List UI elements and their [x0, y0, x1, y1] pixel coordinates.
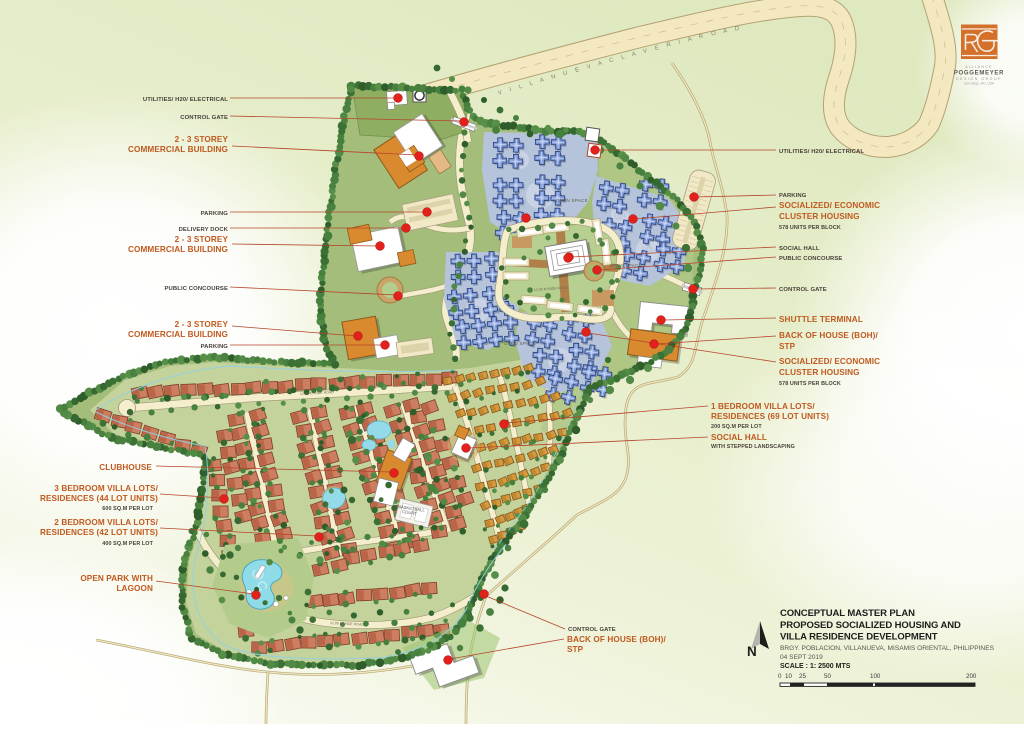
svg-text:SCALE : 1: 2500 MTS: SCALE : 1: 2500 MTS	[780, 663, 851, 670]
svg-text:DESIGN GROUP: DESIGN GROUP	[956, 77, 1002, 81]
svg-text:200: 200	[966, 673, 977, 680]
svg-text:50: 50	[824, 673, 831, 680]
svg-text:OPEN SPACE: OPEN SPACE	[556, 198, 588, 203]
svg-text:CONTROL GATE: CONTROL GATE	[779, 287, 827, 293]
svg-text:CONCEPTUAL MASTER PLAN: CONCEPTUAL MASTER PLAN	[780, 608, 915, 619]
svg-text:578 UNITS PER BLOCK: 578 UNITS PER BLOCK	[779, 381, 841, 387]
svg-text:100: 100	[870, 673, 881, 680]
svg-text:CLUSTER HOUSING: CLUSTER HOUSING	[779, 368, 860, 377]
svg-text:SOCIAL HALL: SOCIAL HALL	[779, 246, 820, 252]
svg-text:600 SQ.M PER LOT: 600 SQ.M PER LOT	[102, 506, 153, 512]
svg-text:OPEN SPACE: OPEN SPACE	[610, 263, 642, 268]
svg-text:CONTROL GATE: CONTROL GATE	[568, 627, 616, 633]
svg-text:UTILITIES/ H20/ ELECTRICAL: UTILITIES/ H20/ ELECTRICAL	[143, 97, 228, 103]
svg-text:400 SQ.M PER LOT: 400 SQ.M PER LOT	[102, 541, 153, 547]
svg-text:CLUSTER HOUSING: CLUSTER HOUSING	[779, 212, 860, 221]
svg-text:2 BEDROOM VILLA LOTS/: 2 BEDROOM VILLA LOTS/	[54, 518, 158, 527]
svg-text:PARKING: PARKING	[779, 193, 807, 199]
svg-text:578 UNITS PER BLOCK: 578 UNITS PER BLOCK	[779, 225, 841, 231]
svg-text:OPEN SPACE: OPEN SPACE	[504, 341, 536, 346]
svg-text:2 - 3 STOREY: 2 - 3 STOREY	[175, 135, 229, 144]
svg-text:San Diego, MO, USA: San Diego, MO, USA	[964, 82, 995, 86]
svg-text:3 BEDROOM VILLA LOTS/: 3 BEDROOM VILLA LOTS/	[54, 484, 158, 493]
svg-text:10: 10	[785, 673, 792, 680]
svg-text:LAGOON: LAGOON	[116, 584, 153, 593]
svg-text:PUBLIC CONCOURSE: PUBLIC CONCOURSE	[779, 256, 842, 262]
svg-text:VILLA RESIDENCE DEVELOPMENT: VILLA RESIDENCE DEVELOPMENT	[780, 632, 938, 643]
svg-text:COMMERCIAL BUILDING: COMMERCIAL BUILDING	[128, 145, 228, 154]
svg-text:SOCIALIZED/ ECONOMIC: SOCIALIZED/ ECONOMIC	[779, 201, 880, 210]
svg-text:PARKING: PARKING	[201, 344, 229, 350]
svg-text:OPEN PARK WITH: OPEN PARK WITH	[80, 574, 153, 583]
svg-text:200 SQ.M PER LOT: 200 SQ.M PER LOT	[711, 424, 762, 430]
svg-text:ALLIANCE: ALLIANCE	[965, 65, 993, 69]
svg-text:2 - 3 STOREY: 2 - 3 STOREY	[175, 235, 229, 244]
svg-text:STP: STP	[567, 645, 584, 654]
svg-text:PARKING: PARKING	[201, 211, 229, 217]
svg-text:STP: STP	[779, 342, 796, 351]
svg-text:1 BEDROOM VILLA LOTS/: 1 BEDROOM VILLA LOTS/	[711, 402, 815, 411]
svg-text:SHUTTLE TERMINAL: SHUTTLE TERMINAL	[779, 315, 863, 324]
svg-text:CLUBHOUSE: CLUBHOUSE	[99, 463, 152, 472]
svg-text:DELIVERY DOCK: DELIVERY DOCK	[179, 227, 229, 233]
svg-text:RESIDENCES (69 LOT UNITS): RESIDENCES (69 LOT UNITS)	[711, 412, 829, 421]
svg-text:BACK OF HOUSE (BOH)/: BACK OF HOUSE (BOH)/	[567, 635, 667, 644]
svg-text:0: 0	[778, 673, 782, 680]
svg-text:SOCIAL HALL: SOCIAL HALL	[711, 433, 767, 442]
svg-text:SOCIALIZED/ ECONOMIC: SOCIALIZED/ ECONOMIC	[779, 357, 880, 366]
svg-text:04 SEPT 2019: 04 SEPT 2019	[780, 654, 823, 661]
svg-text:CONTROL GATE: CONTROL GATE	[180, 115, 228, 121]
svg-text:UTILITIES/ H20/ ELECTRICAL: UTILITIES/ H20/ ELECTRICAL	[779, 149, 864, 155]
svg-text:BACK OF HOUSE (BOH)/: BACK OF HOUSE (BOH)/	[779, 331, 879, 340]
svg-text:PUBLIC CONCOURSE: PUBLIC CONCOURSE	[165, 286, 228, 292]
svg-text:RESIDENCES (42 LOT UNITS): RESIDENCES (42 LOT UNITS)	[40, 528, 158, 537]
svg-text:2 - 3 STOREY: 2 - 3 STOREY	[175, 320, 229, 329]
svg-text:RESIDENCES (44 LOT UNITS): RESIDENCES (44 LOT UNITS)	[40, 494, 158, 503]
svg-text:COMMERCIAL BUILDING: COMMERCIAL BUILDING	[128, 330, 228, 339]
svg-text:PROPOSED SOCIALIZED HOUSING AN: PROPOSED SOCIALIZED HOUSING AND	[780, 620, 961, 631]
svg-text:COMMERCIAL BUILDING: COMMERCIAL BUILDING	[128, 245, 228, 254]
svg-text:POGGEMEYER: POGGEMEYER	[954, 71, 1004, 77]
svg-text:WITH STEPPED LANDSCAPING: WITH STEPPED LANDSCAPING	[711, 444, 795, 450]
svg-text:25: 25	[799, 673, 806, 680]
svg-text:N: N	[747, 644, 757, 659]
svg-text:BRGY. POBLACION, VILLANUEVA, M: BRGY. POBLACION, VILLANUEVA, MISAMIS ORI…	[780, 645, 995, 652]
